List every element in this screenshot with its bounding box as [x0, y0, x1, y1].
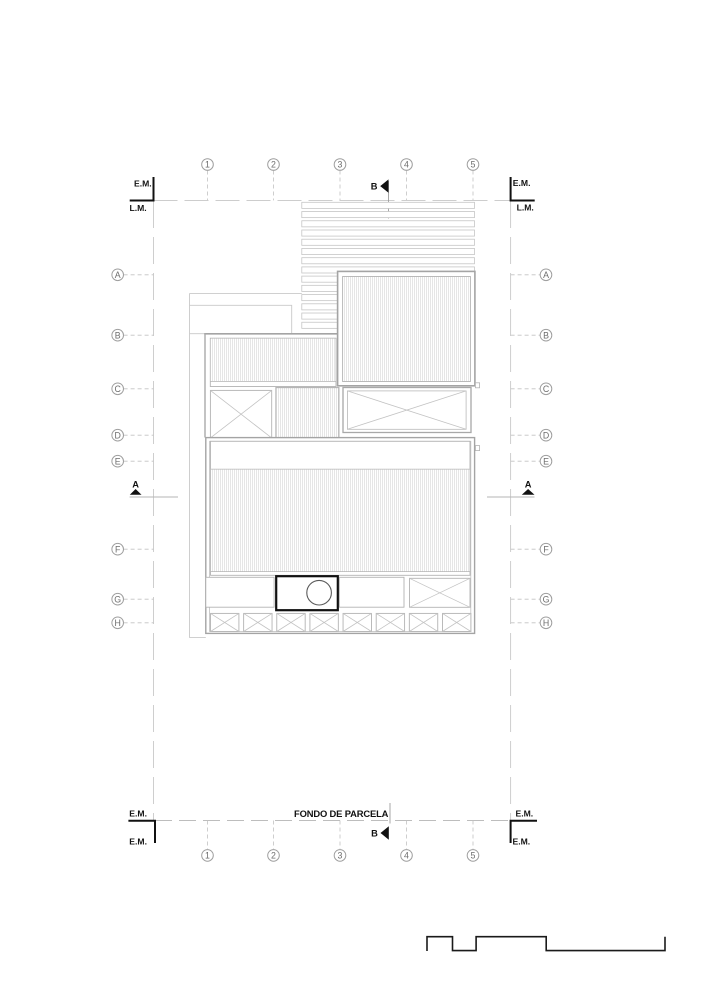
svg-text:3: 3: [338, 160, 343, 170]
svg-text:1: 1: [205, 851, 210, 861]
svg-text:5: 5: [471, 851, 476, 861]
svg-text:4: 4: [404, 851, 409, 861]
svg-text:L.M.: L.M.: [517, 203, 534, 213]
svg-text:3: 3: [338, 851, 343, 861]
svg-text:A: A: [525, 480, 532, 490]
svg-text:G: G: [543, 594, 550, 604]
svg-text:E.M.: E.M.: [513, 178, 531, 188]
svg-text:A: A: [543, 270, 549, 280]
svg-text:E.M.: E.M.: [516, 809, 534, 819]
svg-text:C: C: [115, 384, 122, 394]
svg-text:E.M.: E.M.: [129, 809, 147, 819]
svg-text:B: B: [371, 182, 378, 192]
svg-text:H: H: [543, 618, 549, 628]
svg-text:A: A: [132, 480, 139, 490]
svg-text:D: D: [543, 430, 549, 440]
svg-text:E: E: [543, 456, 549, 466]
svg-text:G: G: [114, 594, 121, 604]
svg-text:5: 5: [471, 160, 476, 170]
svg-text:F: F: [543, 544, 549, 554]
svg-text:F: F: [115, 544, 121, 554]
svg-text:2: 2: [271, 160, 276, 170]
svg-text:4: 4: [404, 160, 409, 170]
svg-text:D: D: [115, 430, 121, 440]
svg-text:C: C: [543, 384, 550, 394]
svg-text:B: B: [543, 330, 549, 340]
svg-text:B: B: [371, 828, 378, 838]
svg-text:E: E: [115, 456, 121, 466]
svg-text:1: 1: [205, 160, 210, 170]
svg-text:FONDO DE PARCELA: FONDO DE PARCELA: [294, 808, 389, 819]
svg-text:E.M.: E.M.: [134, 179, 152, 189]
svg-text:H: H: [115, 618, 121, 628]
svg-text:L.M.: L.M.: [130, 203, 147, 213]
svg-text:E.M.: E.M.: [513, 837, 531, 847]
svg-text:A: A: [115, 270, 121, 280]
svg-text:E.M.: E.M.: [129, 837, 147, 847]
svg-text:2: 2: [271, 851, 276, 861]
svg-text:B: B: [115, 330, 121, 340]
